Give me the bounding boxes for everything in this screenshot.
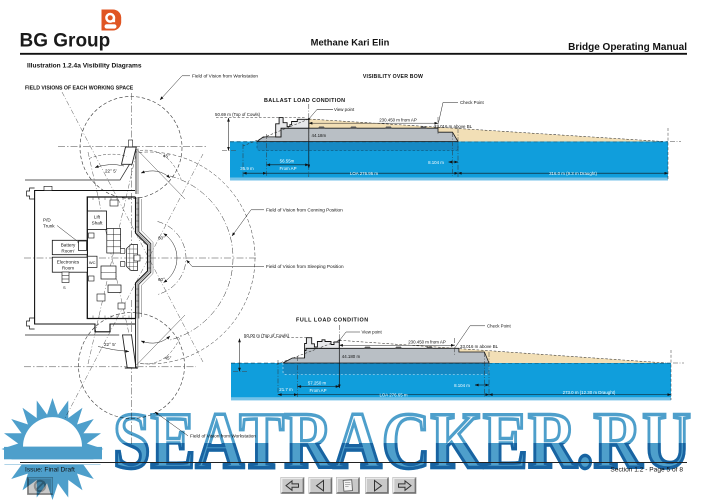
svg-text:60°: 60° bbox=[158, 236, 165, 241]
svg-text:Electronics: Electronics bbox=[57, 260, 80, 265]
svg-text:BG Group: BG Group bbox=[20, 31, 111, 52]
svg-text:Shaft: Shaft bbox=[92, 221, 103, 226]
svg-text:22° 5': 22° 5' bbox=[105, 169, 117, 174]
svg-text:33.016 m above BL: 33.016 m above BL bbox=[434, 124, 473, 129]
svg-text:Check Point: Check Point bbox=[460, 100, 484, 105]
svg-text:57.250 m: 57.250 m bbox=[308, 380, 327, 385]
svg-text:Section 1.2 - Page 5 of 8: Section 1.2 - Page 5 of 8 bbox=[610, 467, 683, 474]
svg-text:BALLAST LOAD CONDITION: BALLAST LOAD CONDITION bbox=[264, 98, 345, 104]
svg-text:56.55m: 56.55m bbox=[280, 159, 295, 164]
svg-text:44.180 m: 44.180 m bbox=[342, 354, 361, 359]
svg-text:Methane Kari Elin: Methane Kari Elin bbox=[311, 37, 390, 48]
svg-text:S: S bbox=[63, 285, 66, 290]
svg-text:50.00 m (Top of Cowls): 50.00 m (Top of Cowls) bbox=[244, 333, 290, 338]
svg-text:33.016 m above BL: 33.016 m above BL bbox=[460, 344, 499, 349]
svg-text:Field of Vision from Sleeping: Field of Vision from Sleeping Position bbox=[266, 264, 344, 269]
svg-text:P/D: P/D bbox=[43, 218, 51, 223]
svg-text:Room': Room' bbox=[61, 248, 74, 253]
svg-text:230.450 m from AP: 230.450 m from AP bbox=[379, 118, 417, 123]
svg-text:8.104 m: 8.104 m bbox=[428, 160, 444, 165]
svg-text:8.104 m: 8.104 m bbox=[454, 383, 470, 388]
svg-text:Field of Vision from Conning P: Field of Vision from Conning Position bbox=[266, 208, 343, 213]
svg-text:Bridge Operating Manual: Bridge Operating Manual bbox=[568, 42, 687, 53]
svg-text:44.18m: 44.18m bbox=[312, 133, 327, 138]
svg-text:FULL LOAD CONDITION: FULL LOAD CONDITION bbox=[296, 318, 369, 324]
svg-text:45°: 45° bbox=[163, 154, 170, 159]
svg-text:45°: 45° bbox=[165, 356, 172, 361]
svg-text:60°: 60° bbox=[158, 277, 165, 282]
svg-text:50.69 m (Top of Cowls): 50.69 m (Top of Cowls) bbox=[215, 112, 261, 117]
svg-text:Issue: Final Draft: Issue: Final Draft bbox=[25, 467, 75, 474]
svg-text:Field of Vision from Workstati: Field of Vision from Workstation bbox=[192, 74, 258, 79]
svg-text:WC: WC bbox=[89, 260, 96, 265]
svg-text:From AP: From AP bbox=[279, 166, 296, 171]
svg-text:Illustration 1.2.4a Visibility: Illustration 1.2.4a Visibility Diagrams bbox=[27, 62, 142, 69]
svg-text:From AP: From AP bbox=[309, 388, 326, 393]
svg-text:21.7 m: 21.7 m bbox=[279, 387, 293, 392]
svg-text:22° 5': 22° 5' bbox=[104, 342, 116, 347]
svg-text:FIELD VISIONS OF EACH WORKING: FIELD VISIONS OF EACH WORKING SPACE bbox=[25, 86, 134, 92]
svg-text:View point: View point bbox=[362, 330, 383, 335]
svg-text:316.0 m (9.3 m Draught): 316.0 m (9.3 m Draught) bbox=[549, 171, 597, 176]
svg-text:Check Point: Check Point bbox=[487, 324, 511, 329]
svg-text:273.0 m (12.30 m Draught): 273.0 m (12.30 m Draught) bbox=[563, 390, 616, 395]
svg-text:LOA 276.95 m: LOA 276.95 m bbox=[350, 171, 378, 176]
svg-text:35.9 m: 35.9 m bbox=[240, 166, 254, 171]
svg-text:230.450 m from AP: 230.450 m from AP bbox=[408, 340, 446, 345]
svg-text:Room: Room bbox=[62, 266, 74, 271]
svg-text:VISIBILITY OVER BOW: VISIBILITY OVER BOW bbox=[363, 74, 423, 80]
svg-text:View point: View point bbox=[334, 107, 355, 112]
svg-text:Battery: Battery bbox=[61, 242, 76, 247]
svg-text:Lift: Lift bbox=[94, 215, 101, 220]
svg-text:Trunk: Trunk bbox=[43, 224, 55, 229]
